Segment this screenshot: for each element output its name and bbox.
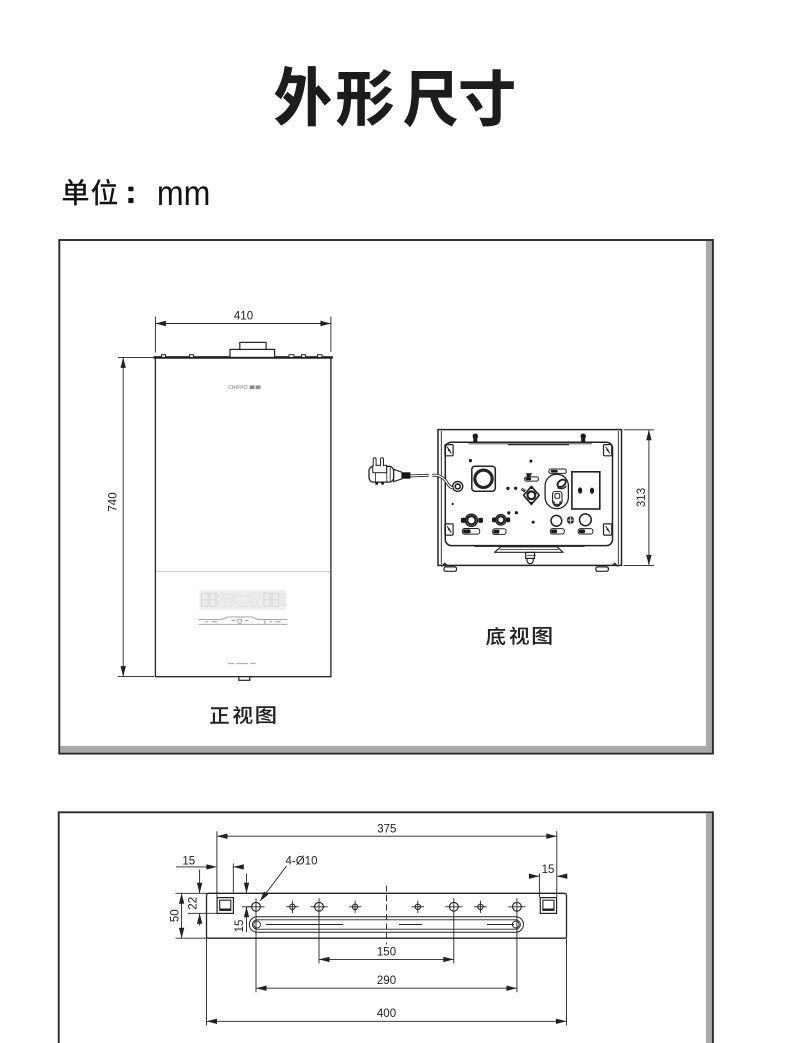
svg-text:15: 15 (542, 864, 555, 876)
svg-text:22: 22 (187, 897, 199, 910)
svg-text:15: 15 (234, 920, 246, 933)
svg-text:4-Ø10: 4-Ø10 (286, 855, 318, 867)
svg-text:375: 375 (377, 823, 396, 835)
svg-text:50: 50 (169, 909, 181, 922)
svg-text:15: 15 (182, 855, 195, 867)
svg-text:150: 150 (377, 946, 396, 958)
svg-text:CHIFFO: CHIFFO (228, 385, 247, 391)
svg-text:740: 740 (108, 492, 120, 511)
svg-text:313: 313 (636, 488, 648, 507)
svg-text:mm: mm (157, 174, 211, 213)
svg-text:400: 400 (377, 1008, 396, 1020)
svg-text:290: 290 (377, 975, 396, 987)
svg-text:410: 410 (234, 310, 253, 322)
